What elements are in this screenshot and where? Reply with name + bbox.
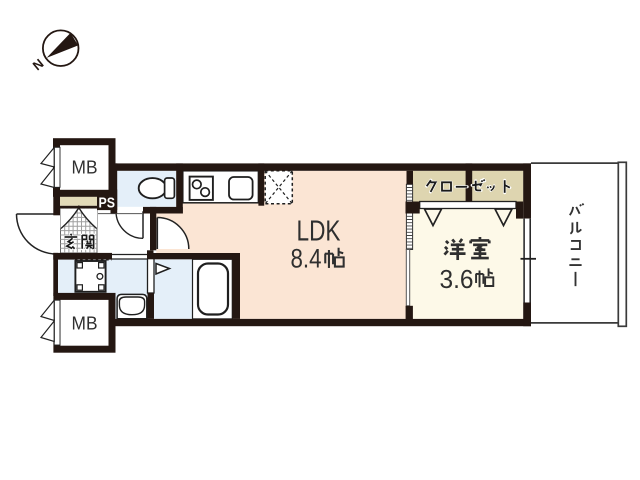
svg-text:PS: PS xyxy=(99,195,116,212)
svg-text:8.4: 8.4 xyxy=(291,244,322,274)
svg-text:3.6: 3.6 xyxy=(440,264,474,294)
svg-text:MB: MB xyxy=(72,157,98,177)
svg-text:MB: MB xyxy=(72,313,98,333)
